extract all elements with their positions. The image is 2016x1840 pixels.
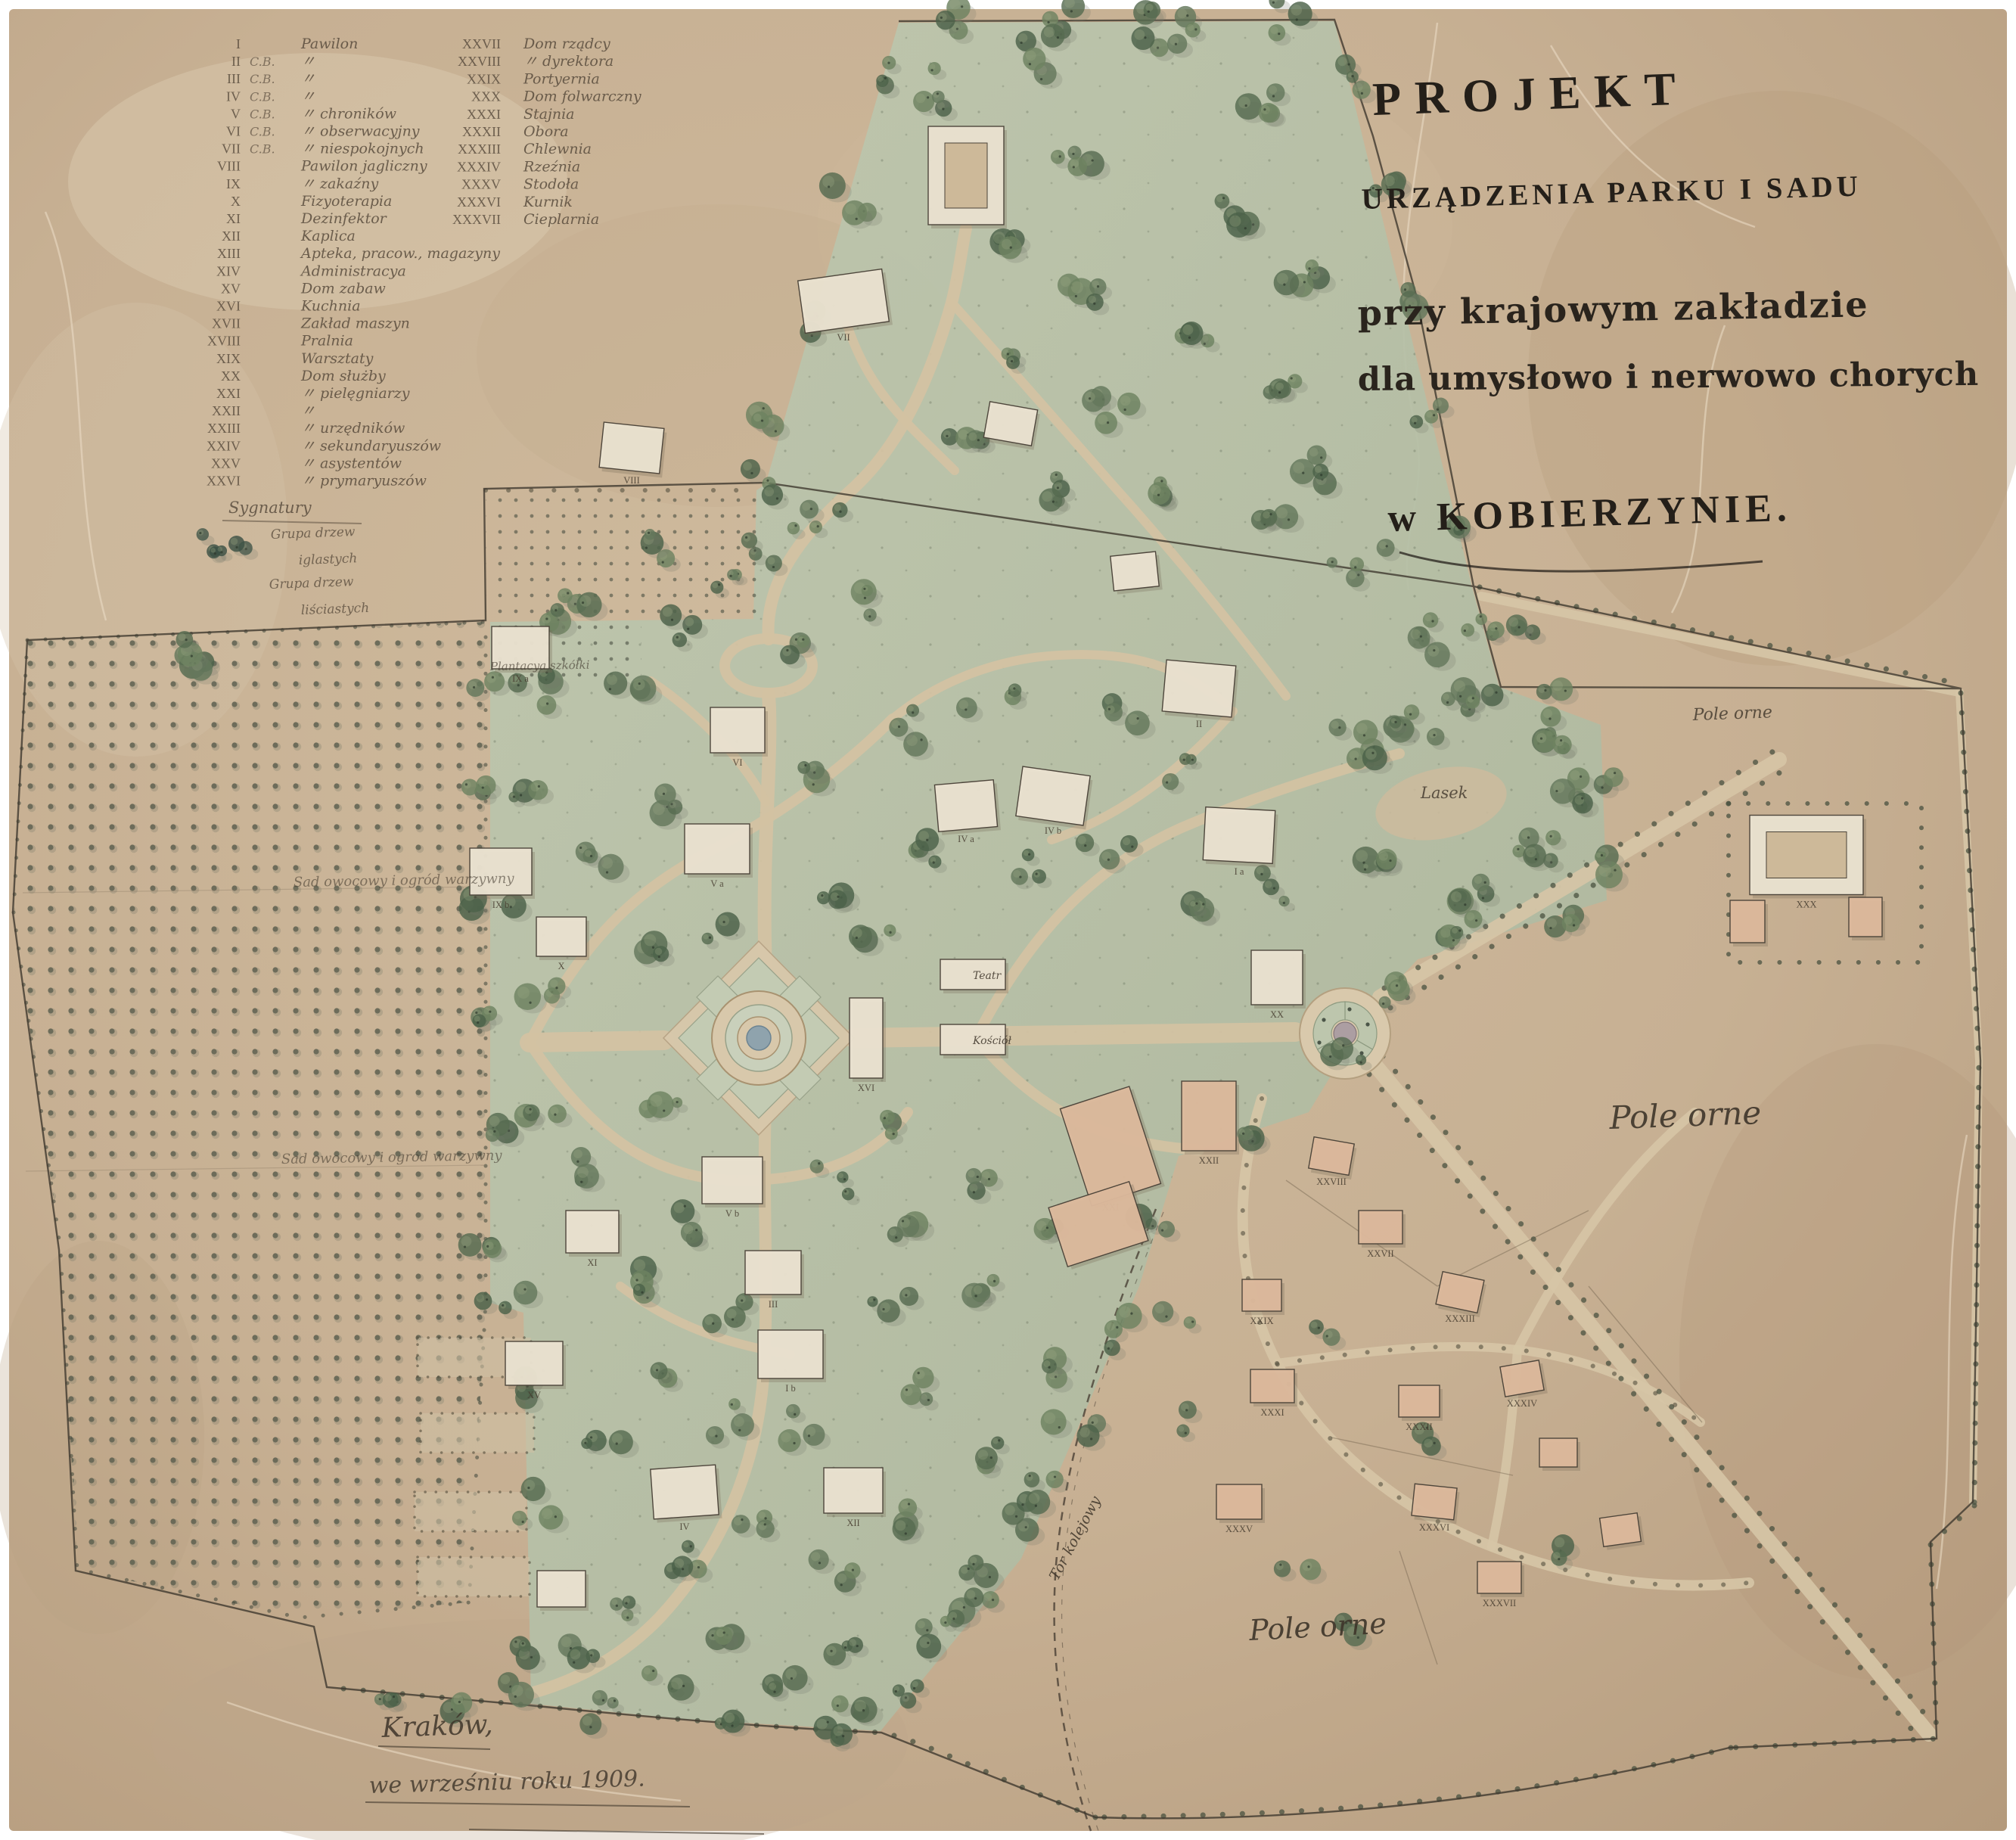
building (599, 422, 667, 477)
legend-item: Kaplica (300, 228, 356, 244)
legend-item: 〃 zakaźny (301, 176, 378, 192)
legend-numeral: XXI (216, 386, 241, 401)
legend-item: Chlewnia (523, 141, 592, 157)
legend-numeral: XXV (211, 455, 241, 471)
legend-numeral: XIX (216, 351, 241, 366)
fountain-pool (747, 1026, 771, 1050)
legend-numeral: XXVIII (458, 54, 501, 69)
building-label: XXXIV (1507, 1398, 1537, 1409)
map-label: Kościół (972, 1035, 1011, 1047)
legend-numeral: IV (226, 89, 241, 104)
building (536, 917, 589, 960)
building-label: V b (725, 1208, 739, 1219)
legend-item: Warsztaty (301, 350, 374, 367)
building (1359, 1211, 1406, 1248)
legend-numeral: XXXII (462, 124, 501, 139)
building (1600, 1512, 1645, 1550)
legend-numeral: XXII (212, 403, 241, 418)
building-label: XXXIII (1445, 1313, 1475, 1324)
signature-city: Kraków, (381, 1709, 493, 1744)
legend-item: 〃 asystentów (301, 455, 402, 471)
legend-symbols-heading: Sygnatury (228, 499, 312, 517)
legend-numeral: XXXV (461, 177, 501, 192)
building-label: VIII (623, 475, 640, 486)
legend-item: Fizyoterapia (300, 193, 392, 210)
legend-prefix: C.B. (250, 125, 275, 139)
legend-item: Dom rządcy (523, 36, 610, 52)
legend-item: 〃 (301, 88, 315, 104)
building (537, 1571, 589, 1611)
building-label: XXXII (1406, 1422, 1432, 1432)
legend-numeral: XX (221, 368, 241, 384)
building-label: XXVII (1367, 1248, 1393, 1259)
building-label: III (769, 1299, 778, 1310)
building (566, 1211, 622, 1257)
legend-item: 〃 prymaryuszów (301, 473, 427, 490)
legend-item: Rzeźnia (523, 158, 580, 175)
building (758, 1330, 826, 1382)
legend-item: Dom zabaw (300, 280, 386, 297)
building-label: XV (527, 1390, 541, 1400)
legend-item: 〃 sekundaryuszów (301, 437, 441, 454)
building-label: V a (710, 878, 724, 889)
map-label: Pole orne (1608, 1094, 1762, 1136)
building-label: XXXVI (1419, 1522, 1449, 1533)
legend-numeral: XXX (471, 89, 501, 104)
legend-numeral: III (227, 71, 241, 86)
legend-prefix: C.B. (250, 107, 275, 121)
legend-item: Obora (523, 123, 569, 140)
building-label: IX b (492, 900, 510, 910)
building (798, 269, 893, 337)
legend-item: 〃 obserwacyjny (301, 123, 420, 140)
legend-item: Dom folwarczny (523, 89, 641, 105)
building-label: XXII (1199, 1155, 1219, 1166)
building-label: I a (1235, 866, 1244, 877)
map-title-line: dla umysłowo i nerwowo chorych (1358, 356, 1980, 399)
building (850, 998, 886, 1082)
legend-item: Portyernia (523, 70, 600, 87)
building (745, 1251, 804, 1298)
building-label: XXVIII (1316, 1176, 1347, 1187)
legend-numeral: V (231, 106, 241, 121)
building (1399, 1385, 1443, 1421)
building (1250, 1369, 1297, 1406)
legend-symbol-label: liściastych (300, 601, 369, 618)
legend-item: Dezinfektor (300, 210, 388, 227)
building (1015, 766, 1093, 829)
legend-numeral: XVIII (207, 334, 241, 349)
building (1849, 897, 1885, 940)
legend-item: Dom służby (300, 368, 386, 384)
historic-map-svg: VIIVIIIVIIX aIX bXV aIV aIV bIII aXVIXXV… (0, 0, 2016, 1840)
building (505, 1341, 566, 1389)
building (1216, 1484, 1265, 1523)
legend-symbol-label: Grupa drzew (269, 574, 354, 592)
legend-numeral: XXXIV (457, 159, 501, 174)
building-label: II (1196, 719, 1202, 729)
garden-frame-plot (415, 1492, 527, 1531)
legend-numeral: XXIX (467, 71, 501, 86)
legend-numeral: XIII (217, 246, 241, 261)
legend-item: Stajnia (523, 106, 575, 123)
legend-numeral: XXIII (207, 421, 241, 436)
legend-item: Kurnik (523, 194, 573, 210)
building-label: I b (785, 1383, 796, 1394)
building-label: IX a (512, 673, 529, 684)
legend-item: Kuchnia (300, 298, 361, 315)
main-axis-path (853, 1032, 1295, 1038)
legend-prefix: C.B. (250, 142, 275, 157)
building-label: XVI (858, 1083, 874, 1093)
legend-numeral: X (231, 194, 241, 209)
legend-numeral: XXXVII (452, 212, 501, 227)
legend-numeral: XXVI (207, 474, 241, 489)
building-label: XX (1270, 1009, 1284, 1020)
legend-item: 〃 (301, 70, 315, 87)
legend-symbol-label: Grupa drzew (270, 524, 356, 542)
building-label: IV a (958, 834, 974, 844)
building (1411, 1484, 1460, 1524)
legend-prefix: C.B. (250, 72, 275, 86)
legend-item: 〃 (301, 53, 315, 70)
legend-item: 〃 niespokojnych (301, 141, 424, 157)
building (1750, 816, 1866, 899)
map-label: Lasek (1420, 784, 1468, 802)
building (1500, 1360, 1548, 1400)
legend-item: Pawilon (300, 36, 358, 52)
legend-item: Cieplarnia (523, 211, 599, 228)
legend-item: Apteka, pracow., magazyny (300, 245, 500, 262)
building (934, 779, 1001, 835)
legend-numeral: XV (221, 281, 241, 296)
building-label: XII (846, 1518, 859, 1528)
legend-numeral: XXXVI (457, 194, 501, 210)
building (710, 707, 768, 757)
legend-numeral: II (231, 54, 241, 69)
building-label: IV b (1045, 825, 1061, 836)
legend-item: 〃 urzędników (301, 420, 405, 437)
legend-symbol-label: iglastych (298, 551, 357, 568)
legend-numeral: XXXI (467, 107, 501, 122)
garden-frame-plot (421, 1413, 534, 1453)
legend-item: 〃 dyrektora (523, 53, 613, 70)
map-label: Pole orne (1691, 703, 1772, 725)
building (1539, 1438, 1580, 1471)
legend-numeral: XXXIII (458, 141, 501, 157)
legend-item: Zakład maszyn (300, 315, 410, 332)
legend-numeral: VII (222, 141, 241, 157)
legend-numeral: XI (226, 211, 241, 226)
building (1182, 1081, 1239, 1155)
building (928, 126, 1007, 228)
building (1477, 1562, 1524, 1597)
legend-item: Pawilon jagliczny (300, 158, 427, 175)
building (1203, 807, 1278, 868)
legend-item: Pralnia (300, 333, 353, 350)
legend-numeral: VIII (217, 159, 241, 174)
building (651, 1465, 722, 1523)
garden-frame-plot (418, 1557, 530, 1596)
building-label: XXXV (1225, 1524, 1253, 1534)
map-label: Teatr (973, 970, 1002, 982)
building (1162, 660, 1239, 721)
legend-item: Administracya (300, 263, 406, 279)
main-axis-path (530, 1040, 664, 1043)
building-label: VI (732, 757, 742, 768)
building-label: VII (837, 332, 850, 343)
building-label: XXIX (1250, 1316, 1273, 1326)
legend-numeral: XXVII (462, 36, 501, 51)
map-label: Plantacya szkółki (489, 658, 590, 673)
legend-numeral: XVI (216, 299, 241, 314)
building-label: X (558, 961, 564, 971)
building-label: XXX (1796, 900, 1816, 910)
legend-numeral: XXIV (207, 438, 241, 453)
legend-prefix: C.B. (250, 54, 275, 69)
building-label: XXXVII (1483, 1598, 1516, 1608)
nursery-plot (486, 490, 756, 619)
legend-item: 〃 pielęgniarzy (301, 385, 410, 402)
building (702, 1157, 766, 1207)
legend-prefix: C.B. (250, 89, 275, 104)
legend-item: Stodoła (523, 176, 579, 193)
legend-numeral: I (236, 36, 241, 51)
legend-numeral: XIV (216, 263, 241, 278)
legend-item: 〃 chroników (301, 105, 396, 122)
building-label: XI (587, 1257, 597, 1268)
building (1251, 950, 1306, 1009)
building-label: XXXI (1260, 1407, 1284, 1418)
orchard-tree-grid (14, 622, 486, 1618)
legend-numeral: XVII (212, 316, 241, 331)
legend-numeral: IX (226, 176, 241, 191)
building (824, 1468, 886, 1517)
legend-numeral: XII (222, 228, 241, 244)
legend-item: 〃 (301, 402, 315, 419)
building (1308, 1137, 1357, 1180)
legend-numeral: VI (226, 124, 241, 139)
building (1730, 900, 1768, 946)
building (685, 824, 753, 878)
building (1242, 1279, 1284, 1315)
building-label: IV (679, 1521, 689, 1532)
building (1111, 552, 1163, 595)
scanned-map-photo: VIIVIIIVIIX aIX bXV aIV aIV bIII aXVIXXV… (0, 0, 2016, 1840)
